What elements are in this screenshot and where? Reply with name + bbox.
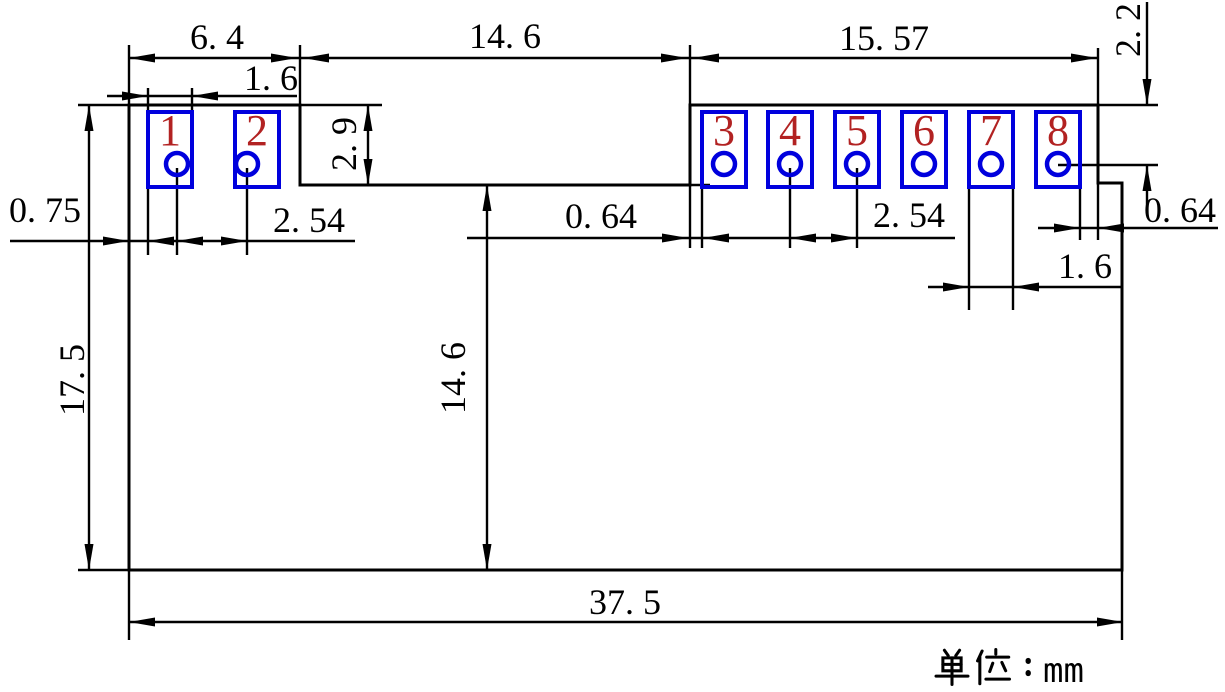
dimension-label: 14. 6 [469, 16, 541, 56]
dimension-label: 2. 2 [1108, 3, 1148, 57]
pad-4-number: 4 [779, 106, 801, 155]
dimension-drawing-page: 6. 414. 615. 572. 21. 62. 90. 752. 540. … [0, 0, 1225, 692]
dimension-label: 0. 64 [1144, 190, 1216, 230]
pad-7-number: 7 [980, 106, 1002, 155]
dimension-label: 0. 75 [9, 190, 81, 230]
dimension-label: 2. 9 [324, 117, 364, 171]
dimension-label: 6. 4 [190, 17, 244, 57]
drawing-canvas: 6. 414. 615. 572. 21. 62. 90. 752. 540. … [0, 0, 1225, 692]
dimension-label: 2. 54 [273, 200, 345, 240]
dimension-label: 15. 57 [839, 18, 929, 58]
dimension-label: 2. 54 [873, 195, 945, 235]
pad-5-number: 5 [846, 106, 868, 155]
dimension-label: 37. 5 [589, 582, 661, 622]
dimension-label: 14. 6 [433, 342, 473, 414]
pad-6-number: 6 [913, 106, 935, 155]
pad-2-number: 2 [246, 106, 268, 155]
dimension-label: 1. 6 [1058, 246, 1112, 286]
unit-note-text: mm [1043, 651, 1084, 691]
pad-8-number: 8 [1047, 106, 1069, 155]
dimension-label: 1. 6 [244, 58, 298, 98]
dimension-label: 17. 5 [52, 344, 92, 416]
pad-3-number: 3 [713, 106, 735, 155]
dimension-label: 0. 64 [565, 196, 637, 236]
pad-1-number: 1 [159, 106, 181, 155]
